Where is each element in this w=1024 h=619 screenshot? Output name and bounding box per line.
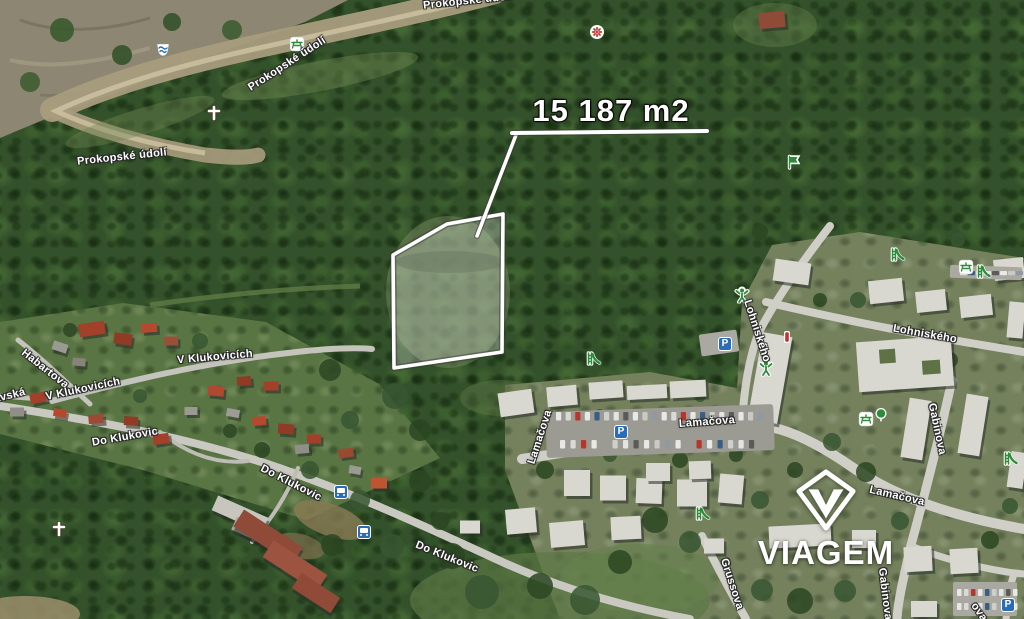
street-label: ova [968, 600, 989, 619]
viagem-logo: VIAGEM [741, 468, 911, 572]
area-annotation: 15 187 m2 [511, 93, 711, 129]
street-label: Gabinova [876, 567, 894, 619]
street-label: Habartova [19, 347, 71, 391]
street-label: Prokopské údolí [77, 146, 168, 167]
street-label: Lamačova [526, 408, 555, 465]
street-label: V Klukovicích [177, 348, 254, 367]
street-label: Lamačova [679, 414, 736, 430]
street-label: Lohniského [892, 322, 958, 345]
street-label: Do Klukovic [91, 425, 159, 448]
street-label: Gabinova [926, 402, 949, 456]
viagem-v-icon [795, 468, 857, 532]
street-label: Do Klukovic [414, 539, 481, 575]
street-label: Prokopské údolí [246, 34, 328, 93]
street-label: Lohniského [741, 298, 772, 363]
street-label: Prokopské údolí [423, 0, 514, 12]
satellite-map[interactable]: PPP Prokopské údolíProkopské údolíProkop… [0, 0, 1024, 619]
street-label: Do Klukovic [258, 462, 323, 503]
street-label: lavská [0, 386, 27, 406]
viagem-wordmark: VIAGEM [741, 534, 911, 572]
